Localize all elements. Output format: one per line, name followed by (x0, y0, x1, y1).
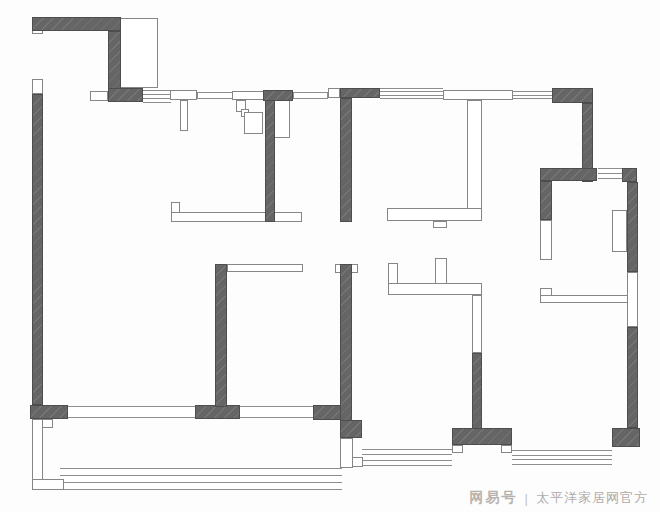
frame-entry-door (90, 91, 108, 101)
frame-midroom-door-head (443, 90, 513, 100)
window-rightroom-top (598, 168, 622, 179)
wall-sw-corner-block (30, 405, 68, 419)
window-line (60, 475, 342, 476)
window-line (143, 102, 171, 103)
thinwall-top-b (293, 92, 328, 99)
opening-balcony-door (68, 406, 195, 418)
thinwall-top-a (197, 92, 233, 99)
wall-entry-right (108, 31, 121, 89)
wall-east-upper (627, 182, 638, 272)
notch-midroom (433, 221, 447, 228)
window-line (512, 455, 612, 456)
opening-south (240, 406, 313, 418)
bar-midroom-bottom (387, 208, 482, 221)
window-line (143, 90, 171, 91)
window-line (513, 91, 552, 92)
window-line (598, 178, 622, 179)
wall-east-lower (627, 327, 638, 428)
window-entry (143, 90, 171, 103)
wall-bath-south (472, 353, 482, 430)
floorplan-canvas: 网易号 | 太平洋家居网官方 (0, 0, 660, 512)
cabinet-kitchen (274, 100, 290, 138)
wall-bedroom1-right (340, 264, 352, 422)
wall-bedroom1-left (215, 264, 227, 407)
wall-kitchen-header (263, 90, 293, 101)
watermark-source: 太平洋家居网官方 (536, 489, 648, 507)
balcony-notch (42, 419, 53, 428)
partition-midroom (467, 100, 482, 221)
wall-kitchen (265, 98, 275, 222)
window-box-east (627, 272, 638, 327)
watermark-divider: | (525, 491, 529, 506)
wall-west-exterior (32, 94, 43, 405)
window-top-right (513, 91, 552, 99)
wall-rightroom-ne (622, 168, 637, 182)
window-line (362, 460, 452, 461)
frame-mid-door (328, 88, 340, 98)
window-line (513, 95, 552, 96)
frame-west-door (32, 79, 43, 94)
window-line (380, 95, 443, 96)
bath-hook (388, 263, 398, 284)
duct-step-3 (244, 112, 263, 134)
window-line (513, 98, 552, 99)
wall-south-t-block (452, 428, 512, 445)
window-line (380, 91, 443, 92)
lintel-bedroom1 (227, 264, 303, 272)
window-line (380, 88, 443, 89)
window-line (380, 98, 443, 99)
tab-t-block-right (501, 445, 512, 453)
window-box-rightroom-left (540, 220, 552, 260)
closet-entry (118, 18, 158, 88)
balcony-sw-corner (32, 479, 64, 490)
wall-rightroom-left (540, 181, 552, 220)
partition-entry-leg (180, 100, 188, 131)
wall-entry-corner (108, 88, 143, 102)
wall-bay-corner (340, 420, 362, 438)
window-line (362, 454, 452, 455)
window-line (512, 459, 612, 460)
window-line (512, 450, 612, 451)
cap-bedroom1-right-b (351, 264, 358, 273)
window-line (60, 489, 342, 490)
wall-mid-upper (340, 98, 352, 222)
window-line (143, 94, 171, 95)
wall-se-corner-block (612, 428, 640, 447)
wall-entry-top (32, 17, 121, 31)
window-line (598, 168, 622, 169)
wall-mid-header (340, 88, 380, 98)
window-rightroom-bay (512, 450, 612, 465)
watermark-brand: 网易号 (470, 489, 518, 507)
window-line (598, 173, 622, 174)
window-midroom-top (380, 88, 443, 99)
balcony-channel-tab (352, 457, 363, 467)
window-balcony (60, 468, 342, 490)
bath-tab (435, 258, 447, 284)
tab-t-block-left (452, 445, 463, 453)
window-line (512, 464, 612, 465)
watermark: 网易号 | 太平洋家居网官方 (470, 489, 648, 507)
window-line (362, 465, 452, 466)
wall-rightroom-top (540, 168, 597, 181)
partition-entry-cap (170, 90, 197, 100)
wardrobe-rightroom (612, 210, 627, 252)
shelf-rightroom-bar (540, 295, 628, 303)
bath-wall-vertical (472, 295, 482, 353)
wall-south-a (195, 405, 240, 419)
wall-ne-corner (552, 88, 593, 103)
window-line (60, 468, 342, 469)
window-line (143, 98, 171, 99)
window-line (362, 449, 452, 450)
bath-wall-horizontal (388, 283, 482, 295)
window-line (60, 482, 342, 483)
shelf-living-bar (171, 212, 302, 222)
window-bedroom2-bay (362, 449, 452, 466)
